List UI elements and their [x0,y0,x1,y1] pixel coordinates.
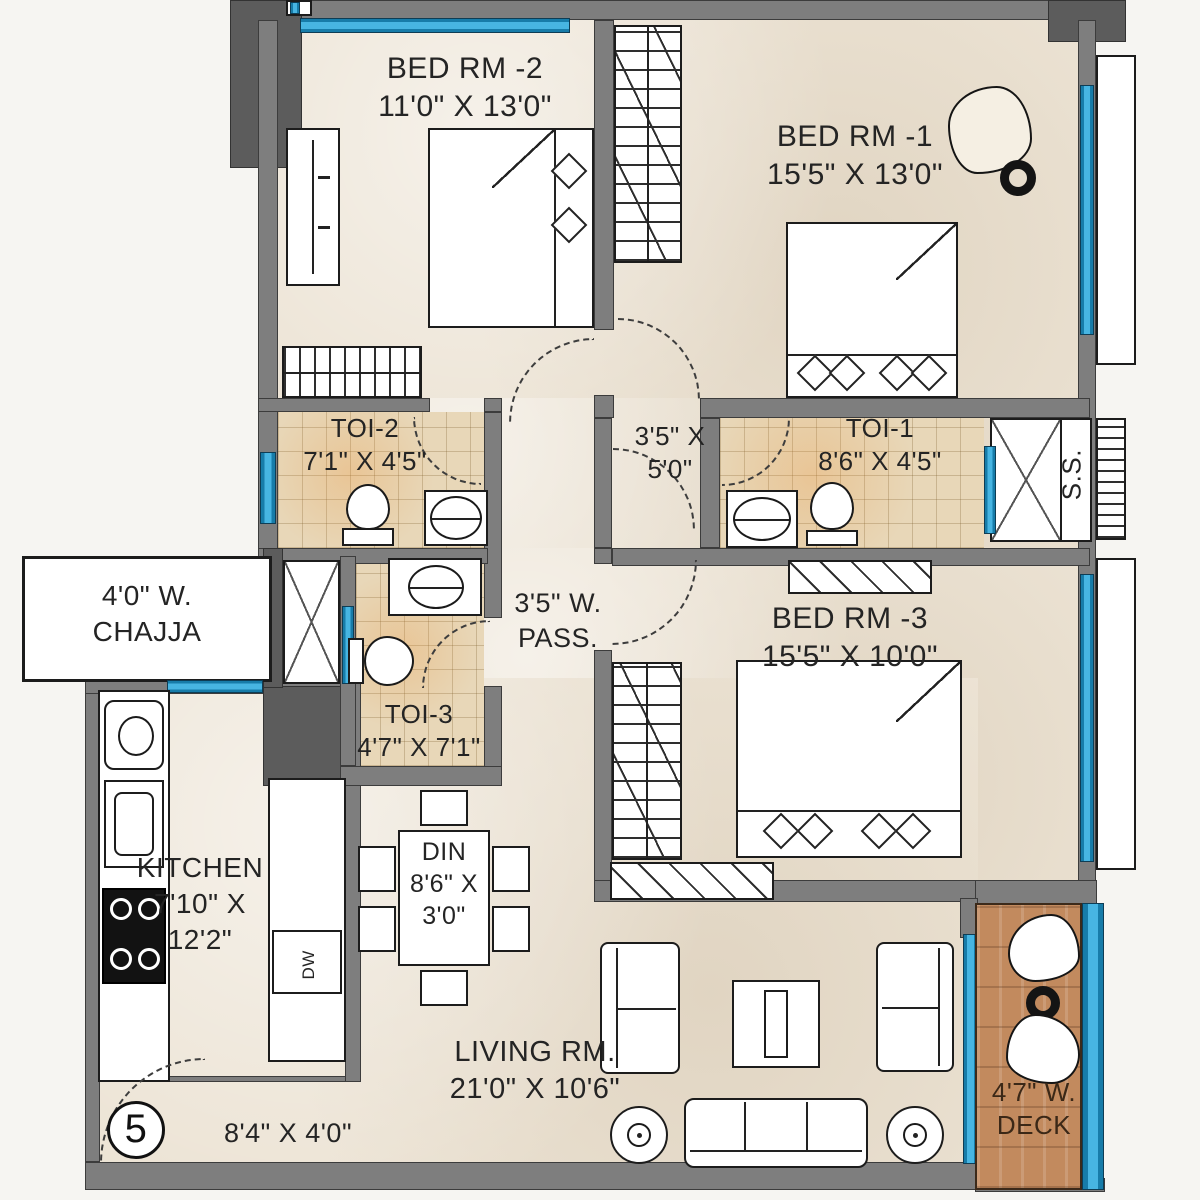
bed2-window [300,18,570,33]
bed2-dressing-table [286,128,340,286]
bed3-wardrobe-center-line [646,664,648,858]
lobby-size-line2: 5'0" [620,453,720,486]
living-stool-right [886,1106,944,1164]
kitchen-sink-round-basin [118,716,154,756]
lobby-label-group: 3'5" X 5'0" [620,420,720,487]
toi2-toilet-bowl [346,484,390,530]
toi3-bottom-wall [340,766,502,786]
toi3-toilet-tank [348,638,364,684]
dining-chair-top [420,790,468,826]
bed1-window [1080,85,1094,335]
kitchen-label-group: KITCHEN 7'10" X 12'2" [110,850,290,957]
sofa-back-line [690,1150,862,1152]
shaft-label: S.S. [1055,443,1088,507]
loveseat-right-back [938,948,940,1066]
toi3-vanity [388,558,482,616]
dining-label-group: DIN 8'6" X 3'0" [398,836,490,932]
kitchen-window [167,680,263,693]
living-loveseat-right [876,942,954,1072]
toi2-room-name: TOI-2 [290,412,440,445]
dining-chair-right-2 [492,906,530,952]
deck-size: 4'7" W. [986,1076,1082,1109]
deck-top-wall [975,880,1097,905]
bed3-double-bed [736,660,962,858]
bed3-pillow-2 [797,813,834,850]
kitchen-size-line1: 7'10" X [110,886,290,922]
kitchen-room-name: KITCHEN [110,850,290,886]
bed2-dresser-knob-2 [318,226,330,229]
dining-chair-right-1 [492,846,530,892]
top-exterior-wall [258,0,1088,20]
toi3-toilet [348,632,426,690]
bed2-door-jamb [594,395,614,418]
bed2-room-size: 11'0" X 13'0" [330,88,600,126]
bed1-room-size: 15'5" X 13'0" [715,156,995,194]
floor-plan: DW BED RM -2 11'0" X 13' [0,0,1200,1200]
toi2-top-wall-stub [484,398,502,412]
toi1-vanity [726,490,798,548]
bed1-pillow-4 [911,355,948,392]
unit-number-circle: 5 [107,1101,165,1159]
toi1-window [984,446,996,534]
toi3-label-group: TOI-3 4'7" X 7'1" [348,698,490,765]
stool-left-dot [637,1133,642,1138]
deck-label-group: 4'7" W. DECK [986,1076,1082,1143]
service-shaft-x [990,418,1062,542]
loveseat-right-divider [882,1007,938,1009]
bed3-room-size: 15'5" X 10'0" [710,638,990,676]
chajja-label-group: 4'0" W. CHAJJA [40,578,254,650]
bed2-pillow-1 [551,153,588,190]
bed2-dresser-knob-1 [318,176,330,179]
bed2-wardrobe [282,346,422,398]
lobby-size-line1: 3'5" X [620,420,720,453]
living-center-table [732,980,820,1068]
kitchen-duct-block [263,686,345,786]
bed3-wardrobe [612,662,682,860]
bed2-label-group: BED RM -2 11'0" X 13'0" [330,50,600,127]
bed3-room-name: BED RM -3 [710,600,990,638]
bed3-pillow-3 [861,813,898,850]
toi3-basin-line [410,587,462,589]
bed1-blanket-fold [896,224,956,280]
bed1-wardrobe [614,25,682,263]
toi1-label-group: TOI-1 8'6" X 4'5" [800,412,960,479]
passage-name: PASS. [504,621,612,656]
toi2-toilet-tank [342,528,394,546]
unit-number: 5 [125,1104,148,1155]
toi1-room-name: TOI-1 [800,412,960,445]
toi2-vanity [424,490,488,546]
sofa-divider-1 [744,1102,746,1150]
living-stool-left [610,1106,668,1164]
bed1-label-group: BED RM -1 15'5" X 13'0" [715,118,995,195]
living-label-group: LIVING RM. 21'0" X 10'6" [395,1034,675,1108]
living-sofa [684,1098,868,1168]
sofa-divider-2 [806,1102,808,1150]
dining-chair-left-2 [358,906,396,952]
toi2-label-group: TOI-2 7'1" X 4'5" [290,412,440,479]
kitchen-shaft-xbox [283,560,340,684]
bed2-wardrobe-rail [284,372,420,374]
living-room-size: 21'0" X 10'6" [395,1071,675,1108]
toi2-room-size: 7'1" X 4'5" [290,445,440,478]
bed2-double-bed [428,128,594,328]
bed3-exterior-chajja [1096,558,1136,870]
toi2-toilet [338,484,398,548]
toi3-room-size: 4'7" X 7'1" [348,731,490,764]
bed3-label-group: BED RM -3 15'5" X 10'0" [710,600,990,677]
toi2-top-wall [258,398,430,412]
bed3-window [1080,574,1094,862]
neighbor-window-glass [290,2,300,14]
toi2-window [260,452,276,524]
chajja-size: 4'0" W. [40,578,254,614]
toi1-toilet [802,482,862,548]
bed1-room-name: BED RM -1 [715,118,995,156]
dining-chair-bottom [420,970,468,1006]
toi3-toilet-bowl [364,636,414,686]
deck-name: DECK [986,1109,1082,1142]
service-ledge-ladder [1096,418,1126,540]
foyer-size-label: 8'4" X 4'0" [208,1116,368,1151]
dining-size-line2: 3'0" [398,900,490,932]
toi1-basin-line [735,519,789,521]
bed3-dresser-bottom [610,862,774,900]
dining-size-line1: 8'6" X [398,868,490,900]
toi2-basin-line [432,518,480,520]
kitchen-sink-square-basin [114,792,154,856]
bed3-pillow-1 [763,813,800,850]
stool-right-dot [913,1133,918,1138]
bed2-pillow-2 [551,207,588,244]
bed3-dresser-top [788,560,932,594]
bed3-pillow-4 [895,813,932,850]
toi3-room-name: TOI-3 [348,698,490,731]
kitchen-sink-round [104,700,164,770]
dishwasher-label: DW [298,930,320,1000]
bed1-plant-pot [1000,160,1036,196]
bed3-left-wall-stub [594,548,612,564]
bed1-double-bed [786,222,958,398]
deck-glass-railing [1082,903,1104,1190]
bed3-headboard-line [738,810,960,812]
lobby-left-wall [594,418,612,548]
passage-size: 3'5" W. [504,586,612,621]
center-table-runner [764,990,788,1058]
bed1-exterior-chajja [1096,55,1136,365]
bed1-wardrobe-center-line [647,27,649,261]
bed2-room-name: BED RM -2 [330,50,600,88]
toi1-toilet-tank [806,530,858,546]
toi1-room-size: 8'6" X 4'5" [800,445,960,478]
loveseat-left-divider [618,1008,676,1010]
toi1-toilet-bowl [810,482,854,530]
dining-room-name: DIN [398,836,490,868]
living-room-name: LIVING RM. [395,1034,675,1071]
chajja-name: CHAJJA [40,614,254,650]
bed1-pillow-2 [829,355,866,392]
bed2-dresser-mirror-line [312,140,314,274]
passage-label-group: 3'5" W. PASS. [504,586,612,655]
kitchen-size-line2: 12'2" [110,922,290,958]
bed2-blanket-fold [492,130,554,188]
dining-chair-left-1 [358,846,396,892]
